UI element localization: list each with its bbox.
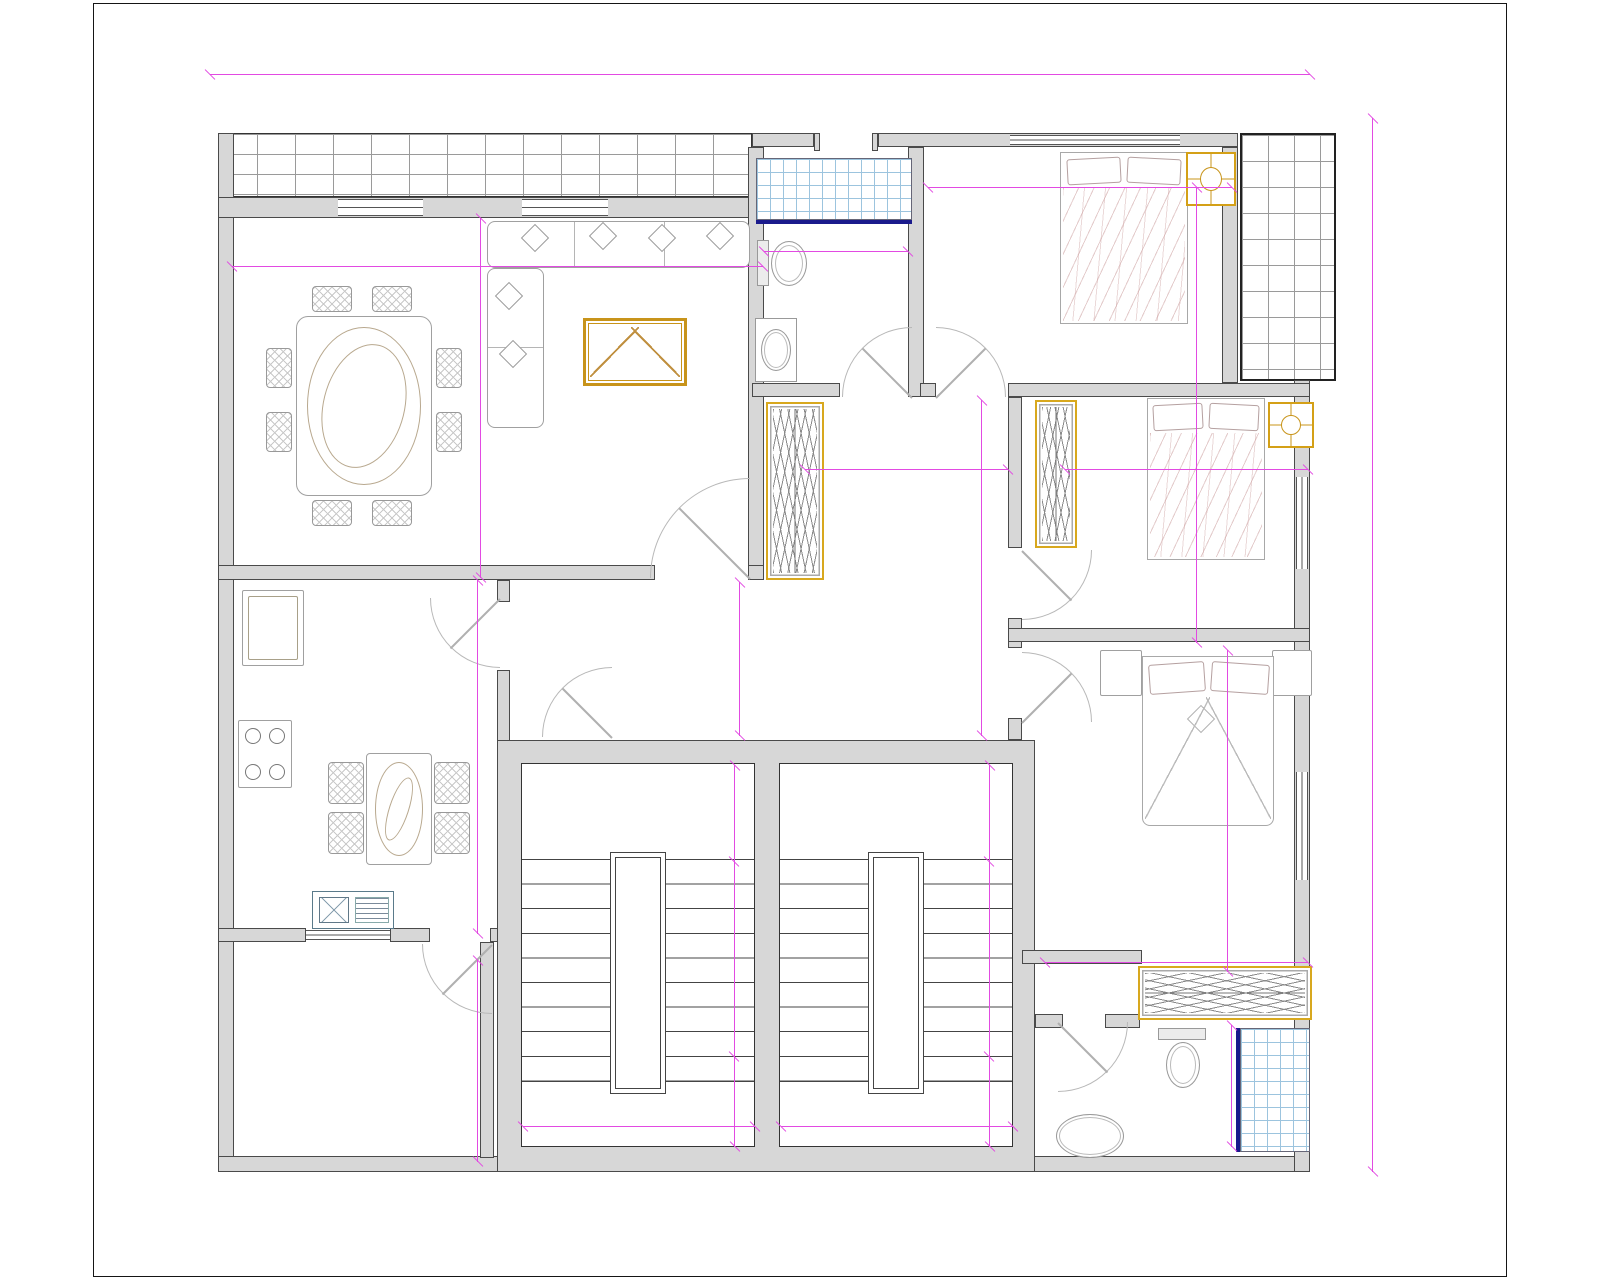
dim-line-suite-width — [1045, 962, 1308, 963]
rug-line — [631, 327, 680, 377]
bed-chambre02 — [1147, 398, 1265, 560]
burner — [269, 764, 285, 780]
washbasin-sdb-top — [755, 318, 797, 382]
kitchen-chair — [434, 812, 470, 854]
wardrobe-hall — [766, 402, 824, 580]
dim-line-overall-height — [1372, 118, 1373, 1172]
lamp — [1281, 415, 1301, 435]
sink-basin — [319, 897, 349, 923]
entry-post-right — [872, 133, 878, 151]
toilet-bowl-top — [771, 241, 807, 286]
wall-sdb-top-south-a — [752, 383, 840, 397]
window-suite — [1296, 772, 1308, 880]
blanket — [1150, 433, 1262, 557]
dining-chair — [312, 286, 352, 312]
entry-post-left — [814, 133, 820, 151]
nightstand-suite-left — [1100, 650, 1142, 696]
window-sejour-1 — [338, 199, 423, 216]
stairwell-left — [521, 763, 755, 1147]
dim-line-chambre02-width — [1065, 469, 1308, 470]
dining-chair — [436, 412, 462, 452]
wardrobe-hangers — [1042, 407, 1070, 541]
pillow — [1066, 157, 1121, 186]
dim-line-stair-right-width — [781, 1126, 1013, 1127]
wall-cuisine-south-a — [218, 928, 306, 942]
burner — [245, 728, 261, 744]
dim-line-stair-left-width — [523, 1126, 755, 1127]
wall-chambre-divider-a — [920, 383, 936, 397]
pillow — [1210, 661, 1270, 695]
burner — [269, 728, 285, 744]
shower-sdb-top — [756, 158, 912, 220]
dining-chair — [372, 286, 412, 312]
wardrobe-sdb-bottom — [1138, 966, 1312, 1020]
bed-chambre01 — [1060, 152, 1188, 324]
nightstand-chambre01 — [1186, 152, 1236, 206]
stair-void — [610, 852, 666, 1094]
wall-chambre-divider-b — [1008, 383, 1310, 397]
fridge — [242, 590, 304, 666]
dining-chair — [372, 500, 412, 526]
shower-edge-top — [756, 220, 912, 224]
dim-line-overall-width — [210, 74, 1310, 75]
balcony-hatch-top-left — [218, 133, 752, 197]
window-sejour-2 — [522, 199, 608, 216]
toilet-tank-bottom — [1158, 1028, 1206, 1040]
pillow — [1208, 403, 1259, 432]
window-chambre02 — [1296, 477, 1308, 569]
wardrobe-chambre02 — [1035, 400, 1077, 548]
dim-line-cuisine-height — [477, 580, 478, 934]
dining-chair — [266, 348, 292, 388]
dim-line-stair-right — [989, 765, 990, 1147]
wardrobe-hangers — [1145, 973, 1305, 1013]
burner — [245, 764, 261, 780]
wall-hall-east-c — [1008, 718, 1022, 740]
balcony-tiled-top-right — [1240, 133, 1336, 381]
kitchen-chair — [328, 762, 364, 804]
dim-line-terrasse-height — [477, 960, 478, 1162]
sink-drainer — [355, 897, 389, 923]
dim-line-sdb-top — [764, 251, 908, 252]
dining-chair — [436, 348, 462, 388]
wall-sejour-top — [218, 197, 752, 218]
stair-void — [868, 852, 924, 1094]
dim-line-sdb-bottom-height — [1231, 1025, 1232, 1147]
fridge-inner — [248, 596, 298, 660]
dim-line-chambres-height — [1196, 187, 1197, 643]
kitchen-table — [366, 753, 432, 865]
pillow — [1148, 661, 1206, 695]
stove — [238, 720, 292, 788]
stairwell-right — [779, 763, 1013, 1147]
wall-cuisine-south-b — [390, 928, 430, 942]
dim-line-sejour-width — [232, 266, 763, 267]
dining-chair — [266, 412, 292, 452]
basin-bowl — [761, 329, 791, 371]
dim-line-suite-height — [1227, 650, 1228, 972]
kitchen-chair — [328, 812, 364, 854]
kitchen-sink — [312, 891, 394, 929]
wardrobe-hangers — [773, 409, 817, 573]
pillow — [1126, 157, 1181, 186]
dim-line-hall-width — [805, 469, 1008, 470]
kitchen-chair — [434, 762, 470, 804]
dining-table — [296, 316, 432, 496]
window-terrasse — [306, 930, 390, 940]
floor-plan-canvas — [0, 0, 1600, 1280]
wall-sejour-south — [218, 565, 655, 580]
dining-chair — [312, 500, 352, 526]
bed-suite — [1142, 656, 1274, 826]
window-chambre01 — [1010, 135, 1180, 145]
fold-line — [1206, 697, 1271, 819]
shower-sdb-bottom — [1240, 1028, 1310, 1152]
wall-exterior-left — [218, 133, 234, 1172]
toilet-bowl-bottom — [1166, 1042, 1200, 1088]
dim-line-hall-south — [739, 582, 740, 736]
wall-exterior-top-a — [752, 133, 814, 147]
fold-line — [1145, 697, 1210, 819]
nightstand-chambre02 — [1268, 402, 1314, 448]
dim-line-sejour-height — [480, 218, 481, 578]
dim-line-stair-left — [734, 765, 735, 1147]
nightstand-suite-right — [1272, 650, 1312, 696]
blanket — [1063, 187, 1185, 321]
washbasin-sdb-bottom — [1056, 1114, 1124, 1158]
rug-sejour — [583, 318, 687, 386]
dim-line-chambre01-width — [928, 187, 1232, 188]
wall-chambre02-suite — [1008, 628, 1310, 642]
dim-line-hall-height — [981, 400, 982, 736]
